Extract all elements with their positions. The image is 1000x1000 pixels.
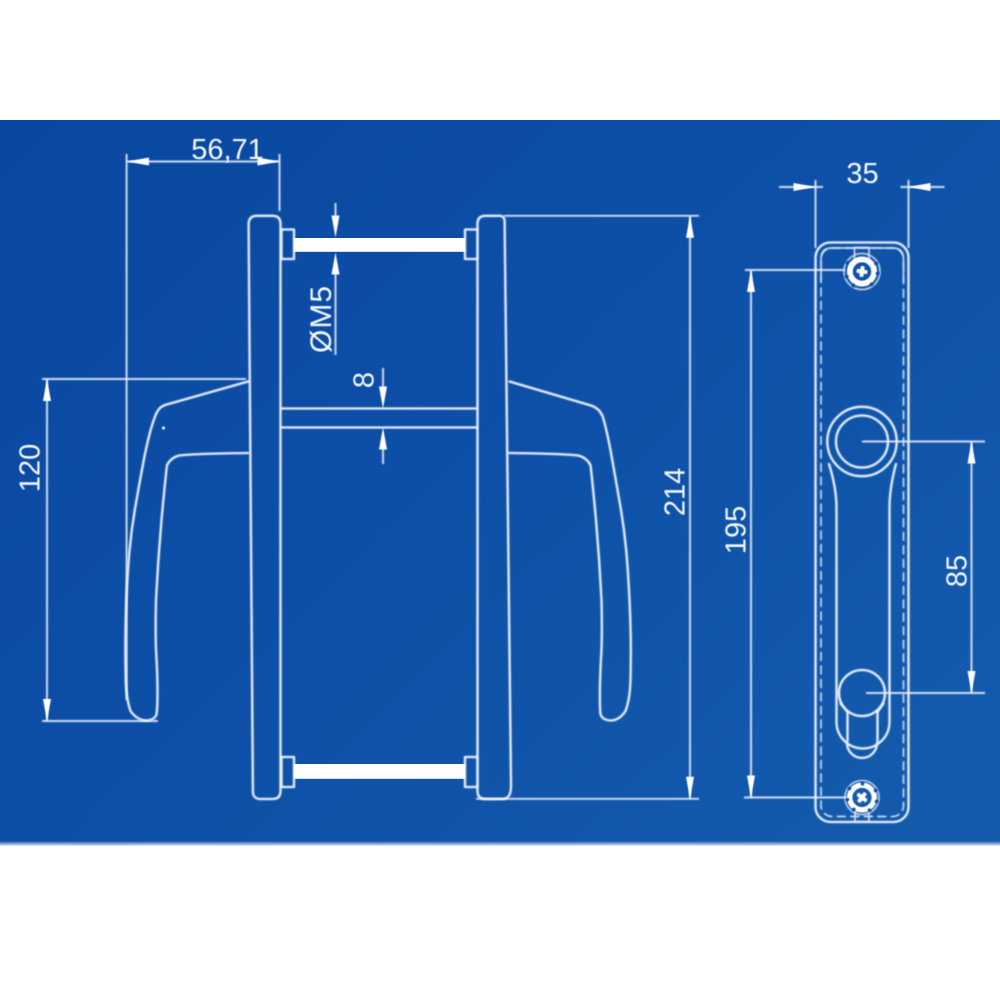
svg-text:85: 85 xyxy=(942,555,974,587)
svg-text:195: 195 xyxy=(721,506,753,554)
svg-text:214: 214 xyxy=(660,468,692,516)
svg-text:ØM5: ØM5 xyxy=(305,285,338,353)
svg-text:120: 120 xyxy=(15,444,47,492)
svg-text:8: 8 xyxy=(349,372,381,388)
svg-text:35: 35 xyxy=(846,158,878,190)
svg-text:56,71: 56,71 xyxy=(191,134,264,166)
